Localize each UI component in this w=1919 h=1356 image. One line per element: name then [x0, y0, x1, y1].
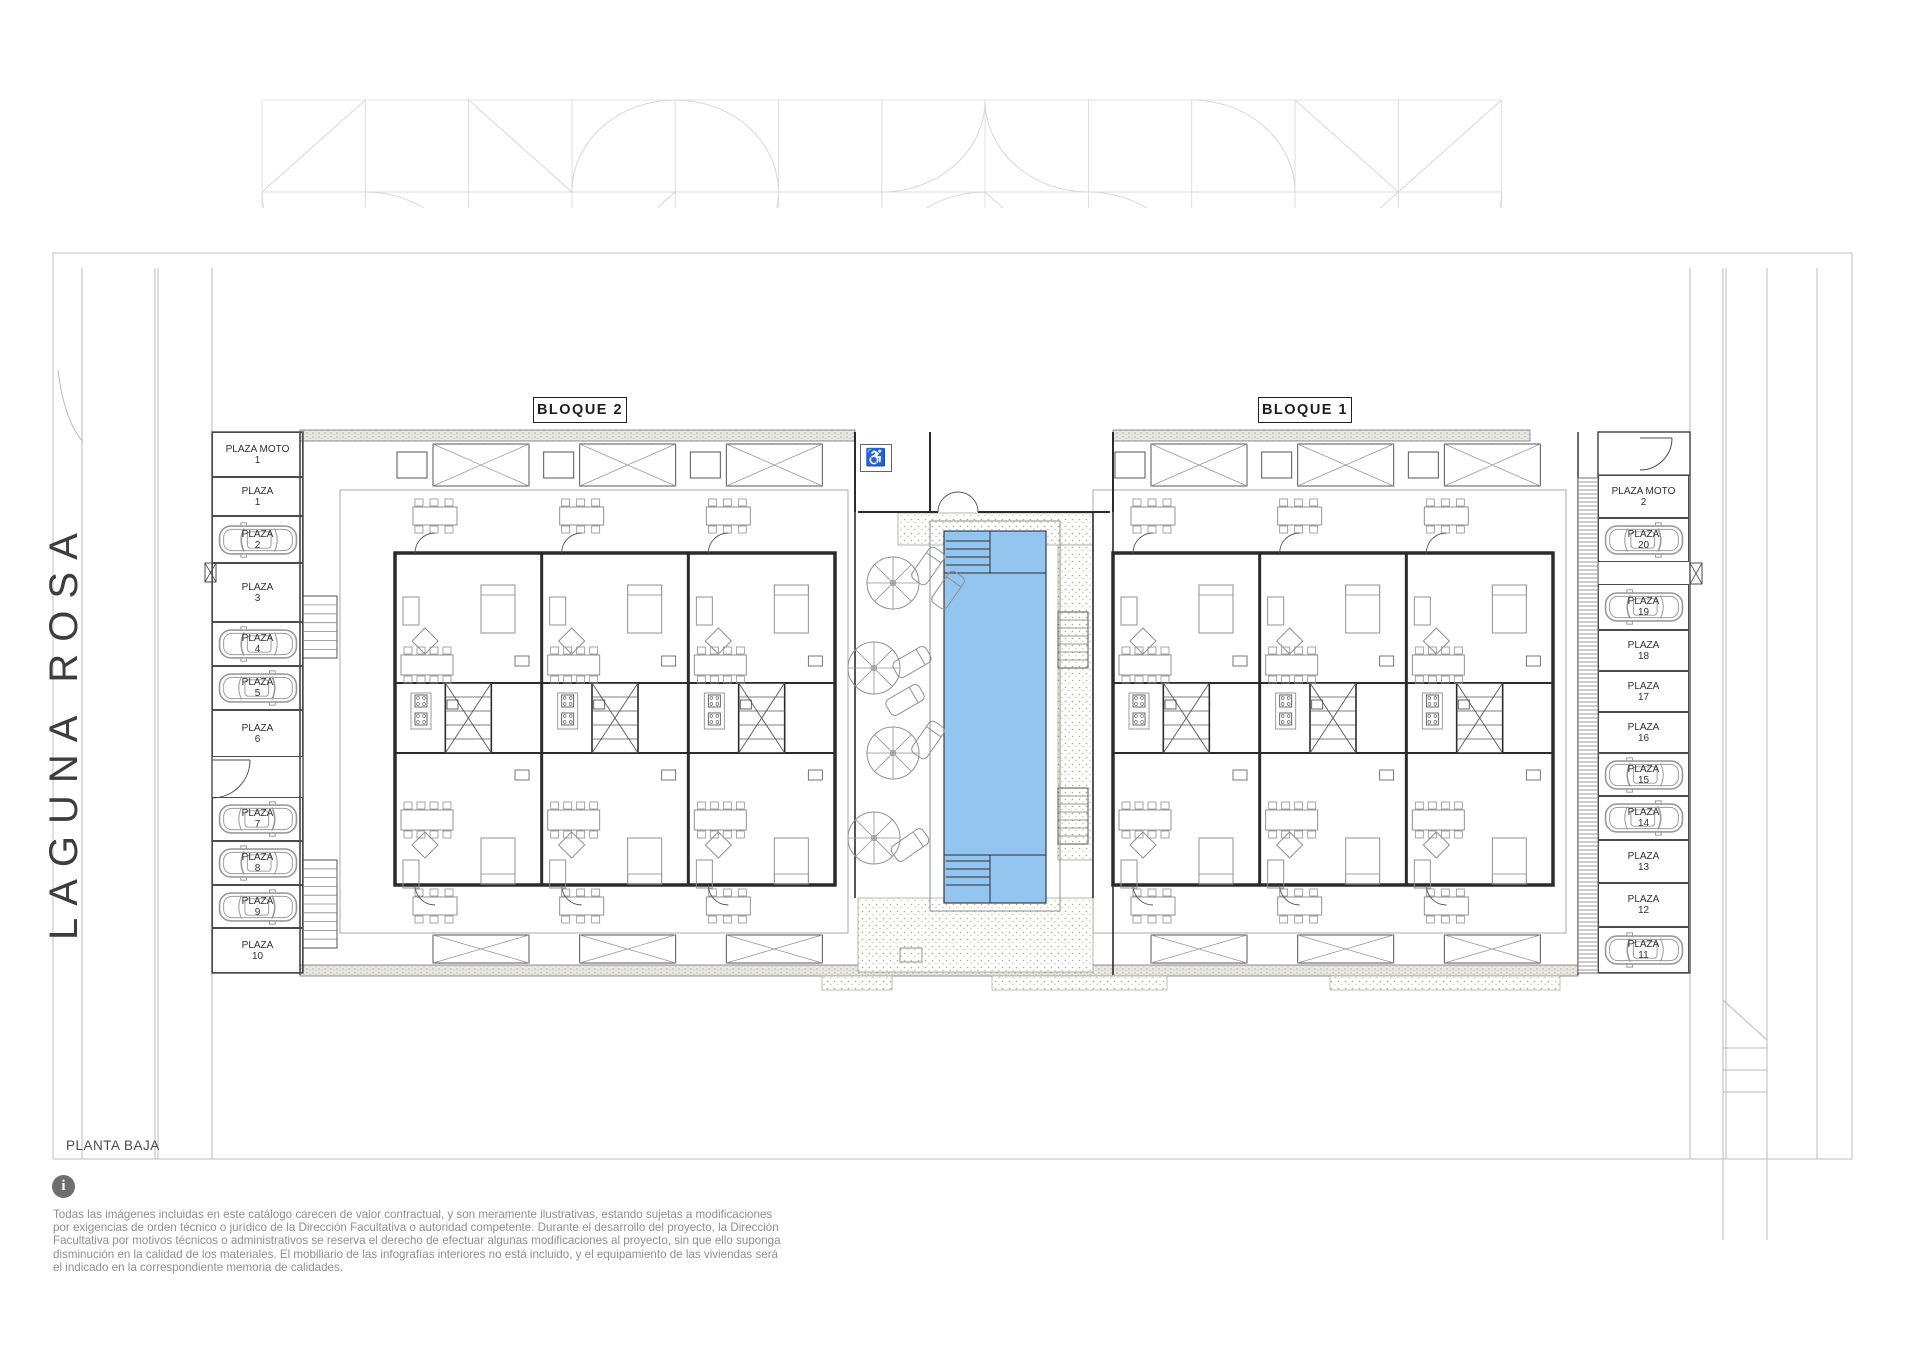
floor-plan-page: PLAZA MOTO1PLAZA1PLAZA2PLAZA3PLAZA4PLAZA…	[0, 0, 1919, 1356]
site-plan-drawing	[0, 0, 1919, 1356]
